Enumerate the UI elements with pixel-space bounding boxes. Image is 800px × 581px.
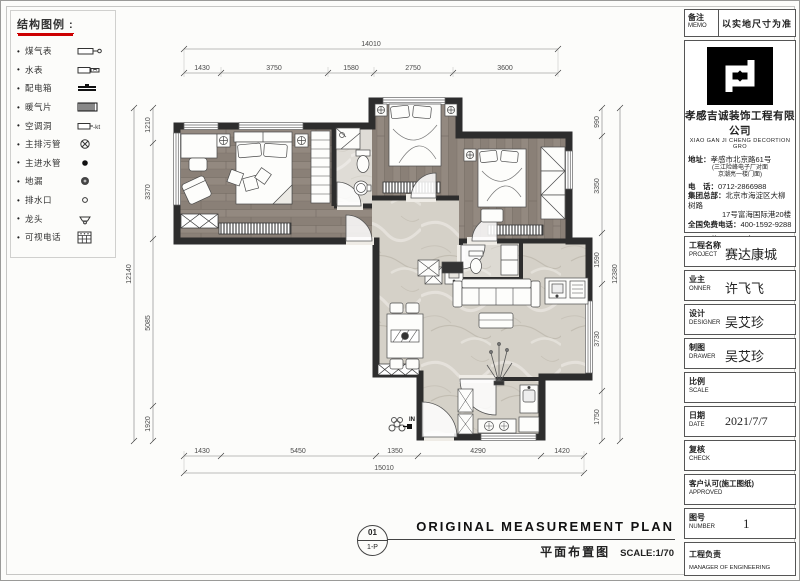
legend-item-sewage-pipe: • 主排污管 [17, 135, 115, 154]
svg-text:2750: 2750 [405, 65, 421, 72]
svg-text:1420: 1420 [554, 448, 570, 455]
owner-value: 许飞飞 [725, 278, 764, 297]
svg-text:1350: 1350 [387, 448, 403, 455]
project-row-approved: 客户认可(施工图纸) APPROVED [684, 474, 796, 505]
wardrobe [311, 131, 330, 203]
svg-text:1430: 1430 [194, 448, 210, 455]
svg-text:5085: 5085 [145, 315, 152, 331]
project-row-name: 工程名称 PROJECT 赛达康城 [684, 236, 796, 267]
designer-value: 吴艾珍 [725, 312, 764, 331]
bullet-icon: • [17, 214, 25, 223]
svg-text:3370: 3370 [145, 184, 152, 200]
window [239, 123, 303, 130]
drawing-title-cn: 平面布置图 [540, 545, 610, 559]
legend-item-ac-hole: • 空调洞 -kt [17, 116, 115, 135]
sofa [453, 279, 540, 307]
drain-outlet-icon [77, 194, 111, 206]
bullet-icon: • [17, 47, 25, 56]
svg-text:3730: 3730 [594, 331, 601, 347]
project-row-drawer: 制图 DRAWER 吴艾珍 [684, 338, 796, 369]
company-name-cn: 孝感吉诚装饰工程有限公司 [685, 108, 795, 138]
stove [478, 419, 516, 433]
window [383, 98, 445, 105]
toilet-2 [469, 251, 483, 274]
sheet-code: 1-P [358, 541, 387, 554]
bay-window [181, 214, 218, 228]
svg-text:3600: 3600 [497, 65, 513, 72]
memo-label-cn: 备注 [688, 12, 718, 23]
drawing-title-en: ORIGINAL MEASUREMENT PLAN [416, 519, 674, 534]
entry-marker: IN [389, 417, 415, 431]
video-phone-icon [77, 231, 111, 244]
bullet-icon: • [17, 65, 25, 74]
structure-legend: 结构图例 : • 煤气表 • 水表 • 配电箱 • 暖气片 [10, 10, 116, 258]
svg-text:990: 990 [594, 116, 601, 128]
svg-text:1590: 1590 [594, 252, 601, 268]
dim-bottom-total: 15010 [374, 465, 394, 472]
project-row-manager: 工程负责 MANAGER OF ENGINEERING [684, 542, 796, 576]
hq-address-2: 17号富海国际港20楼 [688, 210, 792, 220]
gas-meter-icon [77, 45, 111, 57]
svg-text:3350: 3350 [594, 178, 601, 194]
legend-item-distribution-box: • 配电箱 [17, 79, 115, 98]
legend-item-drain-outlet: • 排水口 [17, 191, 115, 210]
bullet-icon: • [17, 158, 25, 167]
company-logo [707, 47, 773, 105]
title-block: 01 1-P ORIGINAL MEASUREMENT PLAN 平面布置图SC… [351, 516, 676, 568]
bullet-icon: • [17, 103, 25, 112]
drawing-number: 01 [358, 526, 387, 541]
address-note-1: (三江险峰电子厂对面 [688, 165, 792, 172]
bullet-icon: • [17, 177, 25, 186]
right-wardrobe [541, 147, 565, 219]
floor-plan: IN 14010 [121, 37, 684, 485]
shower [336, 128, 360, 149]
project-row-number: 图号 NUMBER 1 [684, 508, 796, 539]
memo-label-en: MEMO [688, 23, 718, 29]
phone-number: 0712-2866988 [718, 182, 766, 191]
window [174, 133, 181, 205]
faucet-icon [77, 213, 111, 225]
water-inlet-icon [77, 157, 111, 169]
svg-text:1580: 1580 [343, 65, 359, 72]
legend-item-gas-meter: • 煤气表 [17, 42, 115, 61]
legend-item-water-inlet: • 主进水管 [17, 154, 115, 173]
svg-text:1210: 1210 [145, 117, 152, 133]
drawing-scale: SCALE:1/70 [620, 548, 674, 559]
dim-right-total: 12380 [612, 264, 619, 284]
window [586, 301, 593, 373]
window [566, 151, 573, 189]
coffee-table [479, 313, 513, 328]
legend-item-faucet: • 龙头 [17, 209, 115, 228]
project-row-scale: 比例 SCALE [684, 372, 796, 403]
sewage-pipe-icon [77, 138, 111, 150]
legend-item-radiator: • 暖气片 [17, 98, 115, 117]
bullet-icon: • [17, 121, 25, 130]
project-row-date: 日期 DATE 2021/7/7 [684, 406, 796, 437]
project-name-value: 赛达康城 [725, 244, 777, 263]
svg-text:1430: 1430 [194, 65, 210, 72]
dim-left-total: 12140 [126, 264, 133, 284]
bullet-icon: • [17, 196, 25, 205]
radiator-icon [77, 101, 111, 113]
kitchen-counter [519, 417, 539, 432]
ac-hole-icon: -kt [77, 120, 111, 132]
kitchen-cabinets [458, 389, 473, 434]
svg-text:5450: 5450 [290, 448, 306, 455]
kitchenette [545, 278, 588, 304]
drawing-sheet: 结构图例 : • 煤气表 • 水表 • 配电箱 • 暖气片 [0, 0, 800, 581]
svg-text:1750: 1750 [594, 409, 601, 425]
svg-text:4290: 4290 [470, 448, 486, 455]
tv [442, 262, 463, 273]
company-address: 地址：孝感市北京路61号 (三江险峰电子厂对面 京潮亮一楼门面) 电 话：071… [685, 154, 795, 230]
number-value: 1 [743, 516, 750, 532]
svg-text:-kt: -kt [93, 124, 100, 131]
project-row-designer: 设计 DESIGNER 吴艾珍 [684, 304, 796, 335]
title-bar-sidebar: 备注 MEMO 以实地尺寸为准 孝感吉诚装饰工程有限公司 XIAO GAN JI… [684, 9, 796, 579]
tv-cabinet [418, 260, 439, 276]
bullet-icon: • [17, 233, 25, 242]
address-note-2: 京潮亮一楼门面) [688, 172, 792, 179]
project-row-check: 复核 CHECK [684, 440, 796, 471]
svg-text:3750: 3750 [266, 65, 282, 72]
drawing-number-bubble: 01 1-P [357, 525, 388, 556]
project-row-owner: 业主 ONNER 许飞飞 [684, 270, 796, 301]
svg-text:1920: 1920 [145, 416, 152, 432]
memo-box: 备注 MEMO 以实地尺寸为准 [684, 9, 796, 37]
cabinet-bath2 [501, 245, 518, 275]
company-name-en: XIAO GAN JI CHENG DECORTION GRO [685, 138, 795, 150]
dim-top-total: 14010 [361, 41, 381, 48]
water-meter-icon [77, 64, 111, 76]
legend-item-video-phone: • 可视电话 [17, 228, 115, 247]
legend-item-floor-drain: • 地漏 [17, 172, 115, 191]
distribution-box-icon [77, 82, 111, 94]
floor-drain-icon [77, 175, 111, 187]
company-box: 孝感吉诚装饰工程有限公司 XIAO GAN JI CHENG DECORTION… [684, 40, 796, 233]
kitchen-sink [520, 385, 538, 413]
legend-item-water-meter: • 水表 [17, 61, 115, 80]
window [481, 434, 536, 441]
hotline-number: 400-1592-9288 [741, 220, 792, 229]
address-text: 孝感市北京路61号 [711, 155, 772, 164]
bullet-icon: • [17, 140, 25, 149]
entry-label: IN [409, 417, 415, 423]
legend-title: 结构图例 : [17, 16, 74, 34]
toilet [356, 150, 370, 173]
bedside-table [481, 209, 503, 222]
date-value: 2021/7/7 [725, 414, 768, 429]
bullet-icon: • [17, 84, 25, 93]
drawer-value: 吴艾珍 [725, 346, 764, 365]
window [184, 123, 218, 130]
title-divider [357, 539, 675, 540]
entry-flower-icon [389, 418, 405, 432]
memo-text: 以实地尺寸为准 [719, 10, 795, 36]
